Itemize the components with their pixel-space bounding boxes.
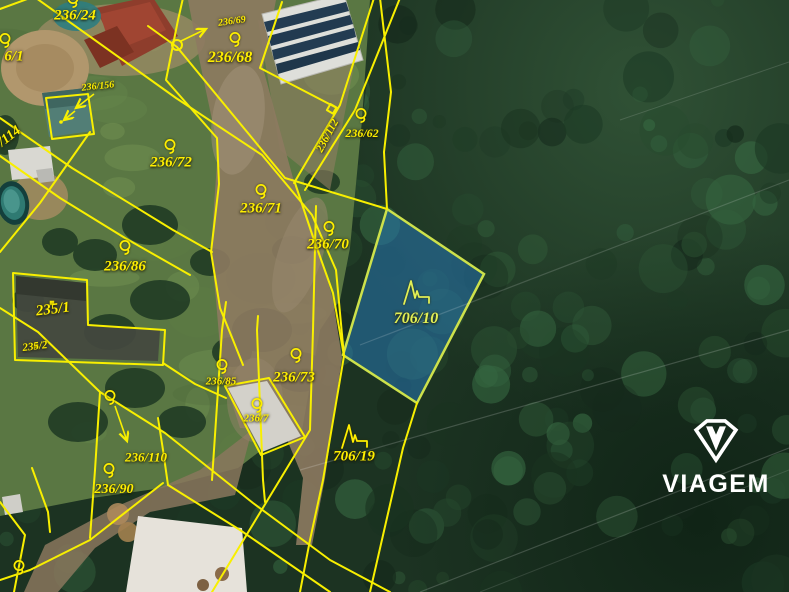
white-building-bottom [126, 516, 247, 592]
building-point-icon [59, 120, 63, 124]
viagem-gem-icon [687, 414, 745, 466]
viagem-wordmark: VIAGEM [646, 470, 786, 499]
aerial-map-graphic [0, 0, 789, 592]
cadastral-map-canvas[interactable]: 236/246/1236/69236/68236/156/114236/7223… [0, 0, 789, 592]
viagem-logo: VIAGEM [646, 414, 786, 499]
